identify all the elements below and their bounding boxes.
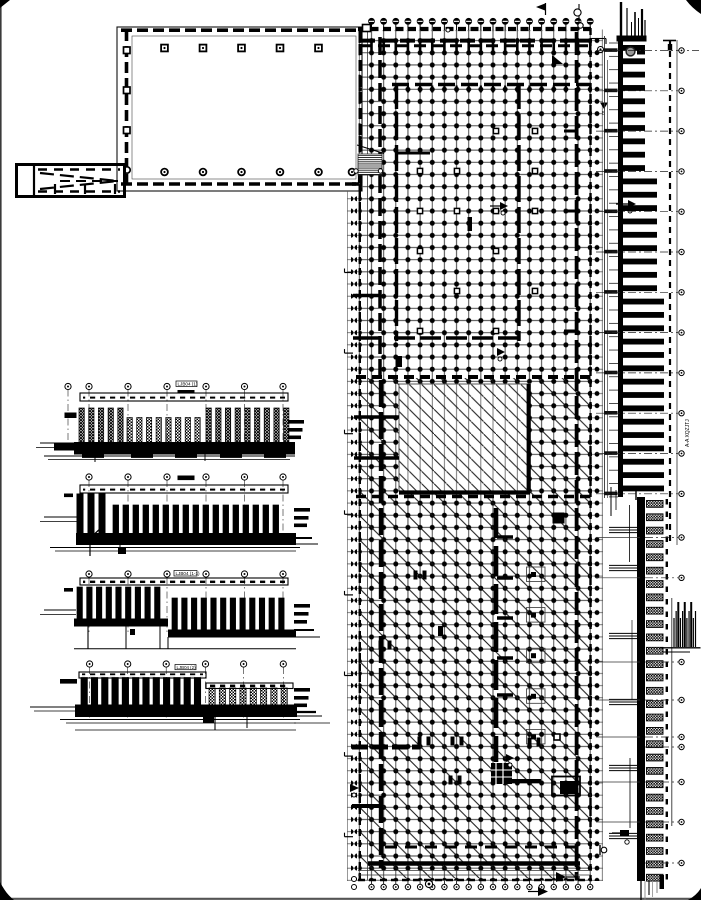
svg-text:LJB04 (1): LJB04 (1) [178, 382, 198, 387]
svg-text:LJB04 (1-1): LJB04 (1-1) [176, 571, 200, 576]
svg-text:A-A XQZJTJ: A-A XQZJTJ [685, 419, 691, 447]
svg-text:LJB04 (2): LJB04 (2) [177, 665, 197, 670]
